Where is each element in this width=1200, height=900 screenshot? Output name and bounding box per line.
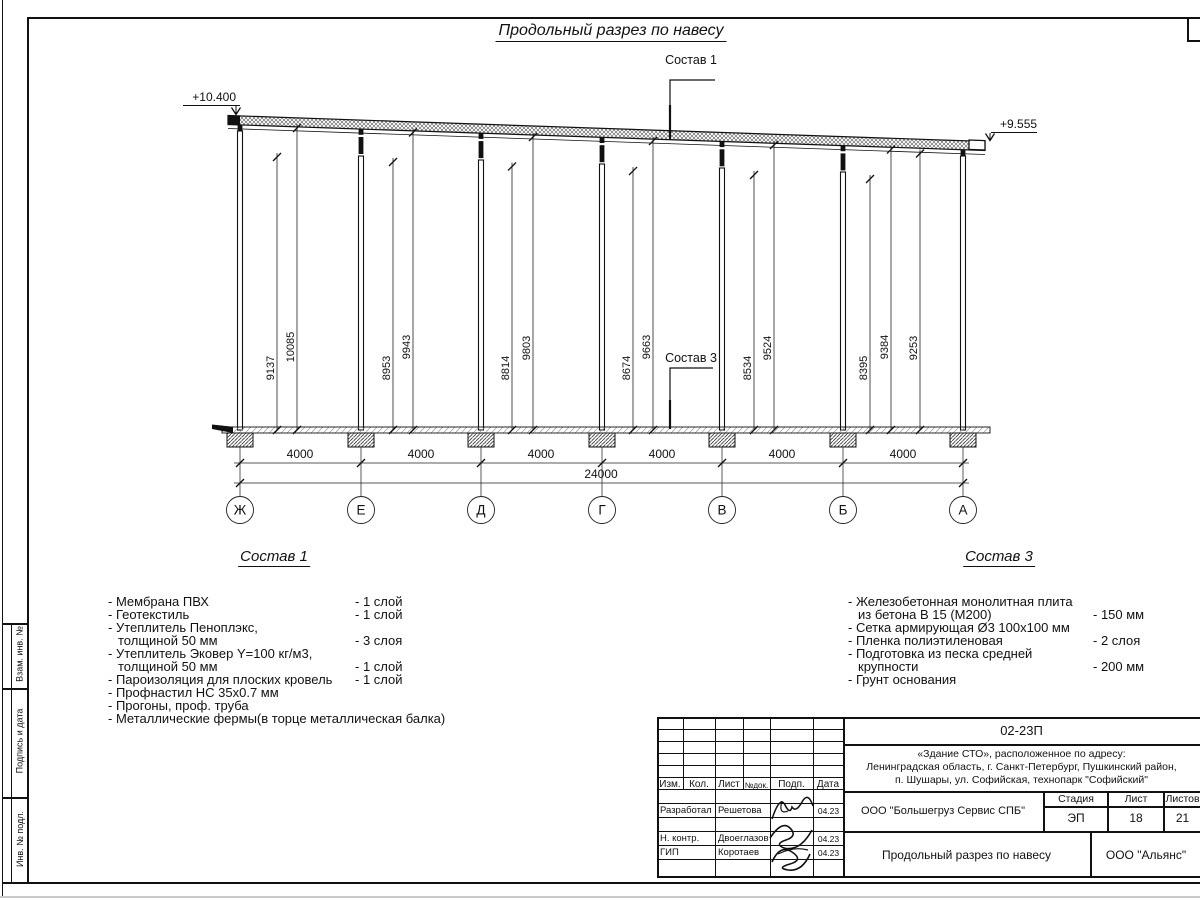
grid-line — [743, 717, 744, 789]
company-name: ООО "Альянс" — [1092, 848, 1200, 862]
composition1-list: - Мембрана ПВХ- 1 слой - Геотекстиль- 1 … — [108, 595, 588, 725]
signer-name: Решетова — [718, 805, 762, 816]
dim-text: 9137 — [265, 356, 277, 380]
axis-label: Б — [839, 503, 848, 518]
grid-line — [657, 777, 843, 778]
composition1-heading: Состав 1 — [238, 548, 310, 567]
drawing-name: Продольный разрез по навесу — [843, 848, 1090, 862]
signer-name: Двоеглазов — [718, 833, 769, 844]
elevation-left-text: +10.400 — [192, 90, 236, 104]
dim-text: 10085 — [285, 332, 297, 363]
stage-value: ЭП — [1045, 811, 1107, 825]
object-address-line3: п. Шушары, ул. Софийская, технопарк "Соф… — [845, 774, 1198, 786]
dim-text: 9663 — [641, 335, 653, 359]
dim-text: 8814 — [500, 356, 512, 380]
leader-sostav3: Состав 3 — [665, 351, 717, 429]
roof-right-cap — [969, 140, 985, 150]
grid-line — [715, 717, 716, 877]
rev-header-kol: Кол. — [683, 779, 715, 790]
signer-role: Разработал — [660, 805, 712, 816]
dim-text: 8534 — [742, 356, 754, 380]
signature — [766, 820, 820, 874]
dim-text: 9384 — [879, 335, 891, 359]
roof-band — [228, 115, 985, 154]
bay-dim-text: 4000 — [287, 447, 314, 461]
rev-header-data: Дата — [813, 779, 843, 790]
sheet-label: Лист — [1109, 793, 1163, 805]
height-dimension-ticks — [273, 124, 924, 434]
grid-line — [657, 717, 1200, 719]
grid-line — [843, 744, 1200, 746]
roof-left-cap — [228, 115, 240, 125]
object-address-line2: Ленинградская область, г. Санкт-Петербур… — [845, 761, 1198, 773]
bay-dim-text: 4000 — [408, 447, 435, 461]
list-item: - Грунт основания — [848, 673, 1198, 686]
dim-text: 9803 — [521, 336, 533, 360]
dim-text: 9253 — [908, 336, 920, 360]
leader-sostav1: Состав 1 — [665, 53, 717, 139]
bay-dim-text: 4000 — [769, 447, 796, 461]
axis-label: Ж — [234, 503, 247, 518]
signer-role: ГИП — [660, 847, 679, 858]
sheet-value: 18 — [1109, 811, 1163, 825]
dim-text: 9524 — [762, 336, 774, 360]
grid-line — [657, 876, 1200, 878]
object-address-line1: «Здание СТО», расположенное по адресу: — [845, 748, 1198, 760]
axis-label: Д — [476, 503, 485, 518]
axis-label: Е — [356, 503, 365, 518]
rev-header-ndok: №док. — [743, 781, 770, 790]
axis-label: А — [958, 503, 967, 518]
sheets-value: 21 — [1165, 811, 1200, 825]
total-dim-text: 24000 — [584, 467, 618, 481]
grid-line — [657, 741, 843, 742]
leader3-label: Состав 3 — [665, 351, 717, 365]
axis-label: В — [717, 503, 726, 518]
grid-line — [657, 729, 843, 730]
org-name: ООО "Большегруз Сервис СПБ" — [843, 805, 1043, 817]
doc-code: 02-23П — [843, 723, 1200, 738]
bay-dim-text: 4000 — [649, 447, 676, 461]
dim-text: 9943 — [401, 335, 413, 359]
dim-text: 8674 — [621, 356, 633, 380]
elevation-mark-right: +9.555 — [986, 117, 1038, 141]
composition3-heading: Состав 3 — [963, 548, 1035, 567]
dim-text: 8953 — [381, 356, 393, 380]
grid-line — [843, 831, 1200, 833]
height-dimensions — [277, 124, 920, 430]
bay-dim-text: 4000 — [890, 447, 917, 461]
bay-dimension-row: 4000 4000 4000 4000 4000 4000 — [234, 447, 969, 467]
sheets-label: Листов — [1165, 793, 1200, 805]
axis-bubbles: Ж Е Д Г В Б А — [227, 497, 977, 524]
total-dimension-row: 24000 — [234, 467, 969, 487]
columns — [238, 131, 966, 430]
bay-dim-text: 4000 — [528, 447, 555, 461]
drawing-sheet: Взам. инв. № Подпись и дата Инв. № подл.… — [0, 0, 1200, 900]
signer-name: Коротаев — [718, 847, 759, 858]
grid-line — [657, 765, 843, 766]
list-item: - Металлические фермы(в торце металличес… — [108, 712, 588, 725]
signer-role: Н. контр. — [660, 833, 699, 844]
leader1-label: Состав 1 — [665, 53, 717, 67]
grid-line — [657, 753, 843, 754]
composition3-list: - Железобетонная монолитная плита из бет… — [848, 595, 1198, 686]
grid-line — [1043, 806, 1200, 808]
rev-header-list: Лист — [715, 779, 743, 790]
rev-header-podp: Подп. — [770, 779, 813, 790]
elevation-right-text: +9.555 — [1000, 117, 1037, 131]
rev-header-izm: Изм. — [657, 779, 683, 790]
signer-date: 04.23 — [814, 806, 843, 816]
axis-label: Г — [598, 503, 606, 518]
stage-label: Стадия — [1045, 793, 1107, 805]
elevation-mark-left: +10.400 — [183, 90, 241, 115]
footings — [227, 433, 976, 447]
dim-text: 8395 — [858, 356, 870, 380]
